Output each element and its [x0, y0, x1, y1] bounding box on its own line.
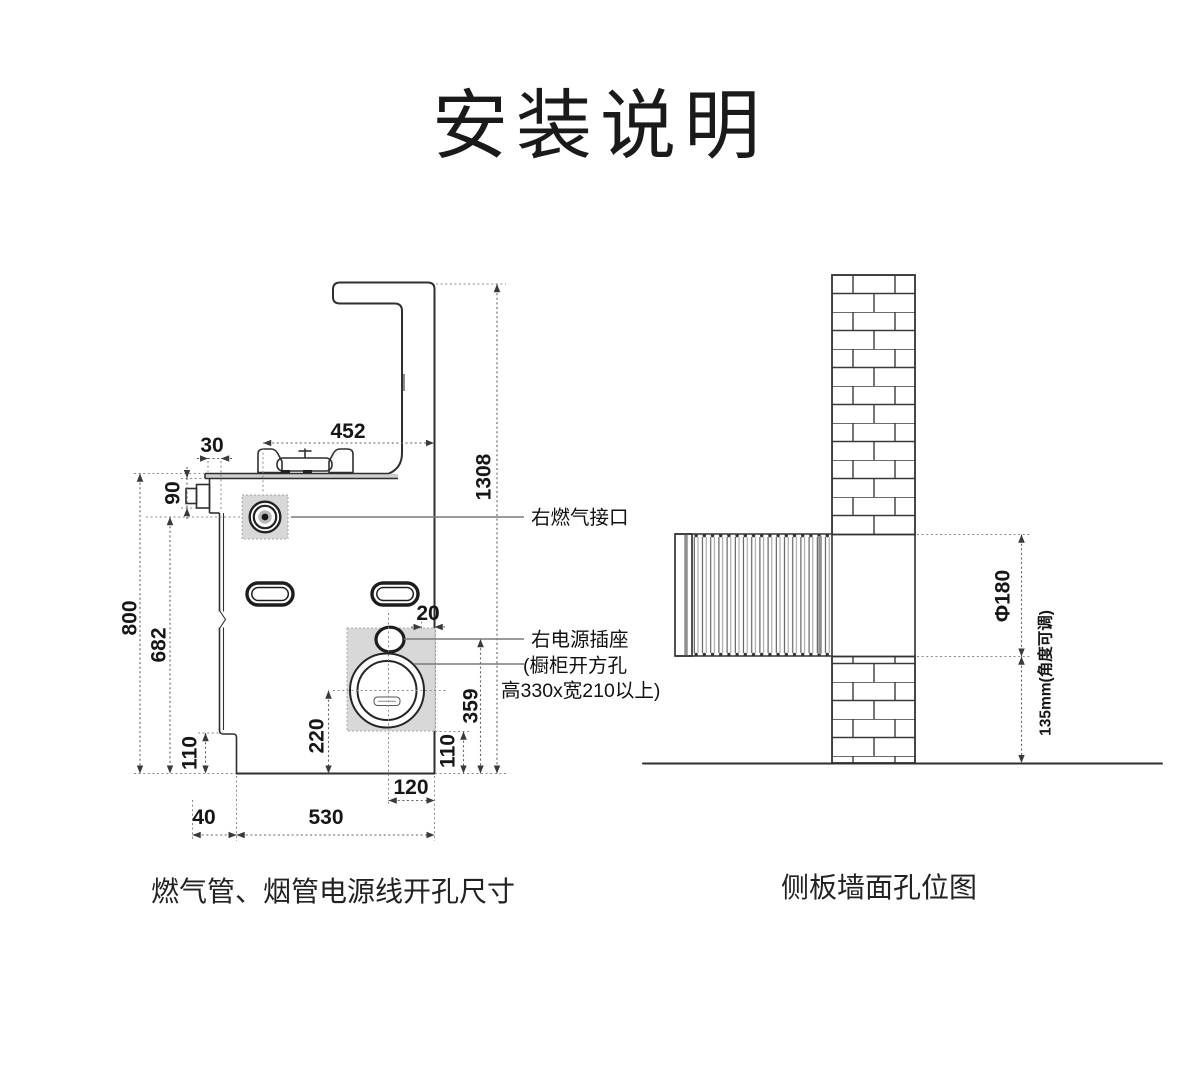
- brick-wall: [832, 275, 915, 763]
- label-power-socket: 右电源插座: [531, 629, 629, 651]
- handle-slots: [247, 583, 418, 605]
- dim-text-20: 20: [416, 602, 439, 625]
- gas-inlet-tip: [186, 489, 197, 504]
- burner-foot: [281, 470, 290, 473]
- dim-text-30: 30: [200, 434, 223, 457]
- dim-text-floor-clearance: 135mm(角度可调): [1035, 610, 1054, 736]
- dim-text-110-left: 110: [178, 736, 201, 770]
- power-cord-hole: [376, 627, 404, 652]
- dim-text-90: 90: [161, 481, 184, 504]
- dimension-texts: 452 30 90 800 682 110 220 110 359 1308 1…: [118, 420, 495, 829]
- burner: [258, 449, 353, 474]
- dim-text-682: 682: [147, 627, 170, 662]
- dim-text-110-right: 110: [436, 734, 459, 768]
- appliance-side-view: 452 30 90 800 682 110 220 110 359 1308 1…: [118, 283, 660, 842]
- gas-port-center: [262, 514, 269, 521]
- wall-lower-section: [832, 657, 915, 764]
- left-diagram-caption: 燃气管、烟管电源线开孔尺寸: [123, 870, 543, 910]
- label-cabinet-opening-2: 高330x宽210以上): [501, 680, 660, 702]
- handle-slot-right: [372, 583, 418, 605]
- burner-foot: [303, 470, 312, 473]
- dim-text-hole-diameter: Φ180: [991, 570, 1014, 622]
- dim-text-1308: 1308: [472, 453, 495, 500]
- duct-corrugation: [692, 534, 831, 656]
- label-cabinet-opening-1: (橱柜开方孔: [523, 655, 627, 677]
- installation-diagram: 452 30 90 800 682 110 220 110 359 1308 1…: [0, 0, 1200, 1076]
- dim-text-800: 800: [118, 600, 141, 635]
- wall-upper-section: [832, 275, 915, 535]
- label-gas-port: 右燃气接口: [531, 507, 629, 529]
- right-diagram-caption: 侧板墙面孔位图: [669, 866, 1089, 906]
- panel-break-gap: [217, 612, 226, 628]
- wall-dimensions: Φ180 135mm(角度可调): [917, 535, 1054, 764]
- dim-text-359: 359: [459, 688, 482, 723]
- wall-hole-diagram: Φ180 135mm(角度可调): [643, 275, 1162, 764]
- cooktop-surface: [205, 474, 398, 479]
- dim-text-452: 452: [330, 420, 365, 443]
- cabinet-opening-zone: [347, 627, 435, 731]
- duct-end-cap: [675, 534, 692, 656]
- dim-text-40: 40: [192, 806, 215, 829]
- callout-labels: 右燃气接口 右电源插座 (橱柜开方孔 高330x宽210以上): [501, 507, 660, 702]
- gas-inlet-stub: [197, 485, 210, 509]
- dim-text-530: 530: [308, 806, 343, 829]
- dim-text-120: 120: [393, 776, 428, 799]
- exhaust-duct: [675, 534, 831, 656]
- dim-text-220: 220: [305, 718, 328, 753]
- gas-connection-zone: [242, 495, 288, 539]
- handle-slot-left: [247, 583, 293, 605]
